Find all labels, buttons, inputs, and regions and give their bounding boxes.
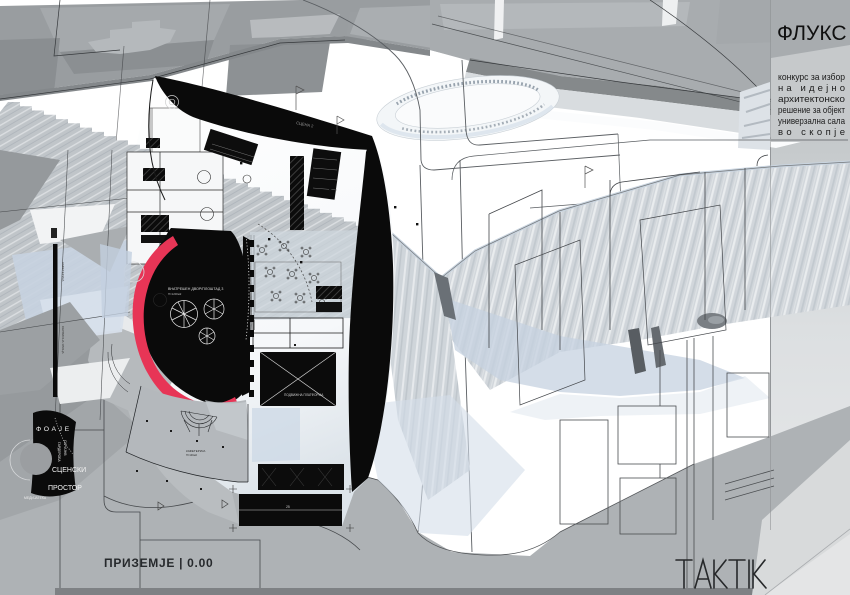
svg-text:ПРИЗЕМЈЕ | 0.00: ПРИЗЕМЈЕ | 0.00 (104, 556, 213, 570)
svg-text:П=1200м2: П=1200м2 (168, 292, 182, 296)
svg-text:конкурс за избор: конкурс за избор (778, 72, 845, 83)
svg-text:СКРИЈНВ: СКРИЈНВ (63, 440, 67, 456)
svg-text:универзална сала: универзална сала (778, 116, 846, 127)
svg-text:на идејно: на идејно (778, 83, 845, 94)
svg-text:во скопје: во скопје (778, 127, 845, 138)
svg-text:ПРОСТОР: ПРОСТОР (48, 485, 82, 492)
svg-text:МЕДИЈАТЕКА: МЕДИЈАТЕКА (24, 496, 47, 500)
svg-text:25: 25 (286, 505, 290, 509)
svg-text:СЕРВИСНА УЛИЦА: СЕРВИСНА УЛИЦА (61, 326, 65, 354)
svg-text:ВНАТРЕШЕН ДВОР/ПЛОШТАД 3: ВНАТРЕШЕН ДВОР/ПЛОШТАД 3 (168, 287, 223, 291)
svg-text:ПОДВИЖНА ПЛАТФОРМА: ПОДВИЖНА ПЛАТФОРМА (284, 393, 324, 397)
svg-text:ФЛУКС: ФЛУКС (777, 22, 847, 45)
svg-text:КАФЕТЕРИЈА: КАФЕТЕРИЈА (61, 262, 65, 281)
svg-text:КАФЕТЕРИЈА: КАФЕТЕРИЈА (186, 449, 205, 453)
svg-text:ГАРДЕРОБА: ГАРДЕРОБА (57, 442, 61, 462)
svg-text:П=146м2: П=146м2 (186, 453, 197, 457)
svg-text:СЦЕНСКИ: СЦЕНСКИ (52, 467, 86, 474)
svg-text:ФОАЈЕ: ФОАЈЕ (36, 426, 72, 433)
svg-text:решение за објект: решение за објект (778, 105, 846, 116)
svg-text:архитектонско: архитектонско (778, 94, 845, 105)
